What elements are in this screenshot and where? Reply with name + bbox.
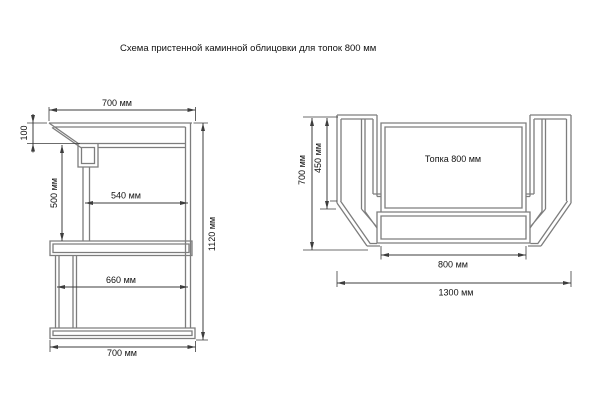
side-view-outline xyxy=(49,123,195,339)
plan-view-left-leg xyxy=(337,115,381,246)
diagram-title: Схема пристенной каминной облицовки для … xyxy=(120,43,376,54)
dim-label-total-height: 1120 мм xyxy=(207,217,217,251)
dim-label-hood-height: 100 xyxy=(19,125,29,140)
dim-label-plinth-width: 660 мм xyxy=(106,275,136,285)
dim-label-inner-depth: 450 мм xyxy=(313,143,323,173)
dim-label-opening-height: 500 мм xyxy=(49,178,59,208)
firebox-label: Топка 800 мм xyxy=(425,154,481,164)
plan-view-dimension-lines xyxy=(312,118,571,283)
dim-label-opening-width: 540 мм xyxy=(111,191,141,201)
dim-label-top-width: 700 мм xyxy=(102,98,132,108)
plan-view-right-leg xyxy=(526,115,571,246)
dim-label-total-width: 1300 мм xyxy=(439,288,474,298)
dim-label-total-depth: 700 мм xyxy=(297,155,307,185)
plan-view-firebox-and-band xyxy=(377,123,530,243)
dim-label-bottom-width: 700 мм xyxy=(107,348,137,358)
schematic-canvas: Схема пристенной каминной облицовки для … xyxy=(0,0,600,400)
plan-view: Топка 800 мм 700 мм 450 мм 800 мм 1300 м… xyxy=(297,115,571,298)
dim-label-firebox-width: 800 мм xyxy=(438,260,468,270)
side-view: 700 мм 100 500 мм 540 мм 660 мм 700 мм 1… xyxy=(19,98,217,358)
plan-view-extension-lines xyxy=(303,117,571,287)
